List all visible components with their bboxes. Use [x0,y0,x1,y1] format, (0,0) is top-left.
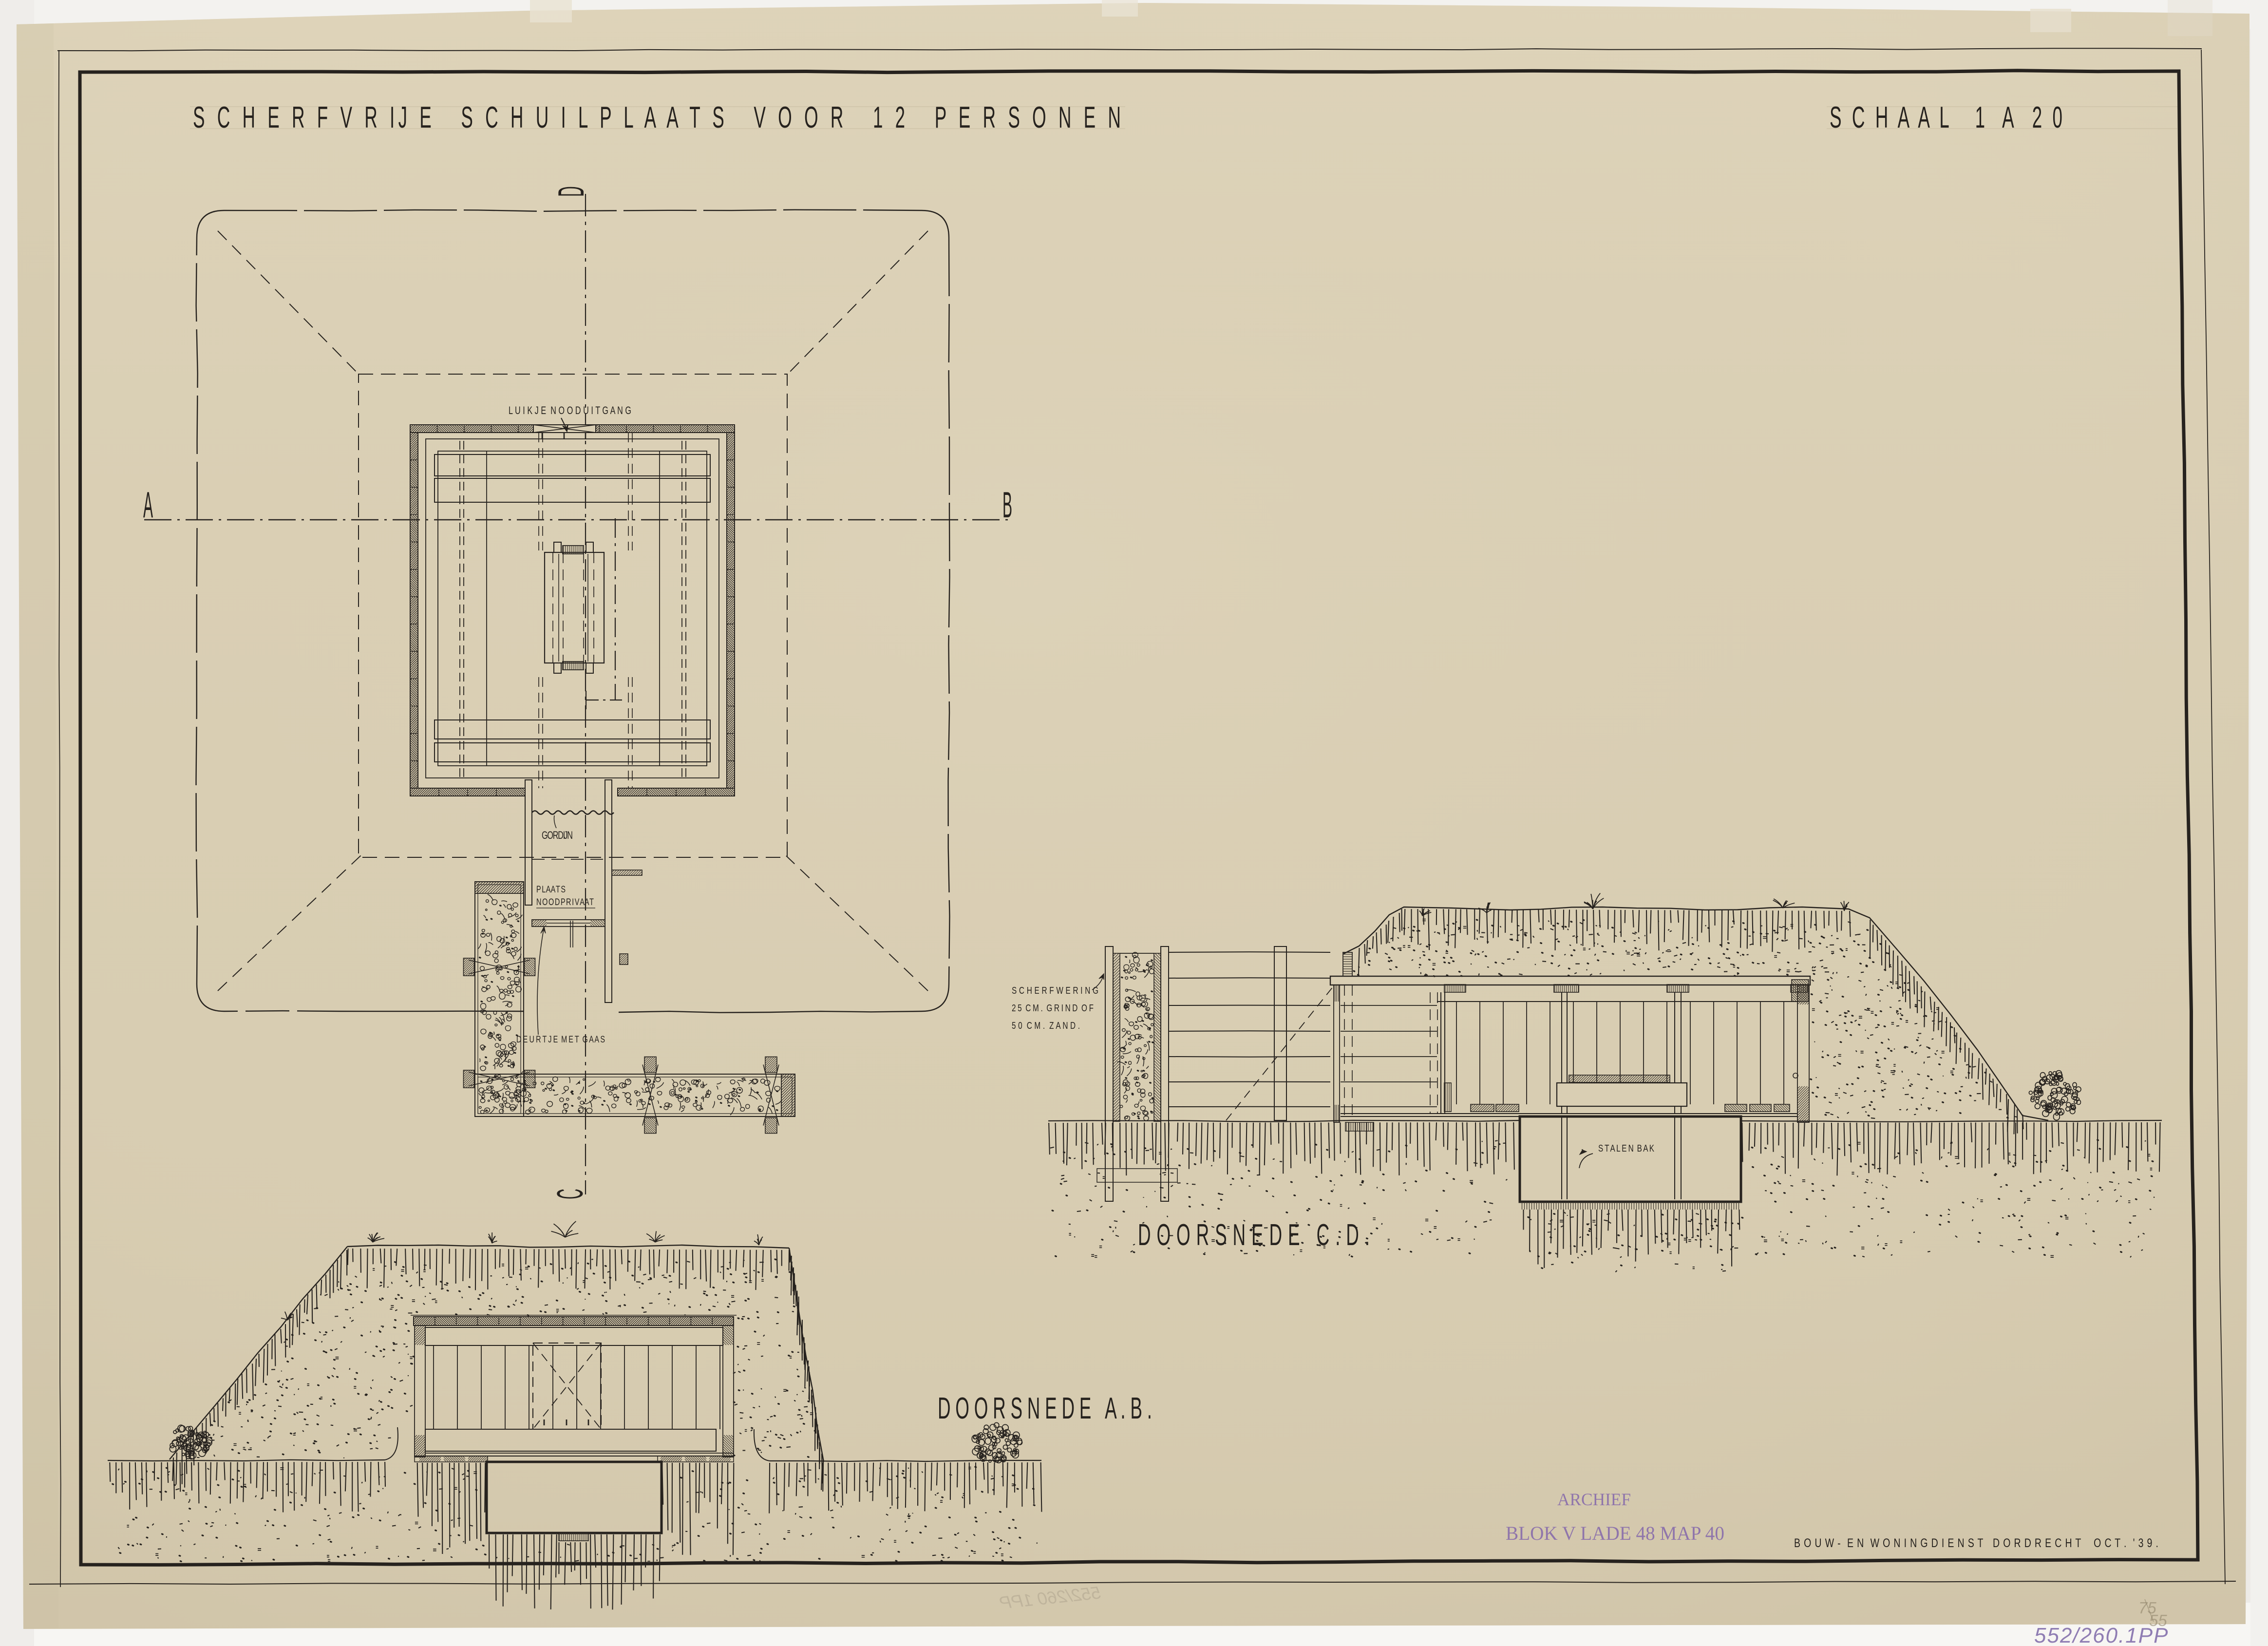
svg-text:D: D [551,186,592,197]
svg-text:2 5 C M . G R I N D O F: 2 5 C M . G R I N D O F [1012,1003,1094,1014]
svg-text:G O R D IJ N: G O R D IJ N [542,830,573,842]
svg-text:S C H A A L 1 A 2 0: S C H A A L 1 A 2 0 [1830,100,2062,134]
svg-text:S C H E R F W E R I N G: S C H E R F W E R I N G [1012,985,1098,996]
svg-text:N O O D P R I V A A T: N O O D P R I V A A T [536,896,594,908]
svg-text:C: C [550,1189,591,1199]
svg-text:D E U R T J E M E T G A A S: D E U R T J E M E T G A A S [516,1034,605,1045]
svg-text:A: A [143,485,153,526]
svg-text:D O O R S N E D E A . B .: D O O R S N E D E A . B . [938,1391,1152,1425]
svg-text:P L A A T S: P L A A T S [536,884,566,895]
svg-text:L U I K J E N O O D U I T G A: L U I K J E N O O D U I T G A N G [509,405,631,417]
svg-text:B O U W - E N W O N I N G D: B O U W - E N W O N I N G D I E N S T D … [1794,1536,2158,1550]
svg-text:ARCHIEF: ARCHIEF [1557,1490,1631,1509]
svg-text:5 0 C M . Z A N D .: 5 0 C M . Z A N D . [1012,1020,1080,1031]
svg-text:D O O R S N E D E C . D .: D O O R S N E D E C . D . [1138,1218,1370,1251]
svg-text:BLOK V LADE 48 MAP 40: BLOK V LADE 48 MAP 40 [1506,1522,1724,1544]
svg-text:S T A L E N B A K: S T A L E N B A K [1598,1143,1654,1154]
svg-text:552/260.1PP: 552/260.1PP [2034,1624,2169,1646]
svg-text:B: B [1002,485,1012,526]
